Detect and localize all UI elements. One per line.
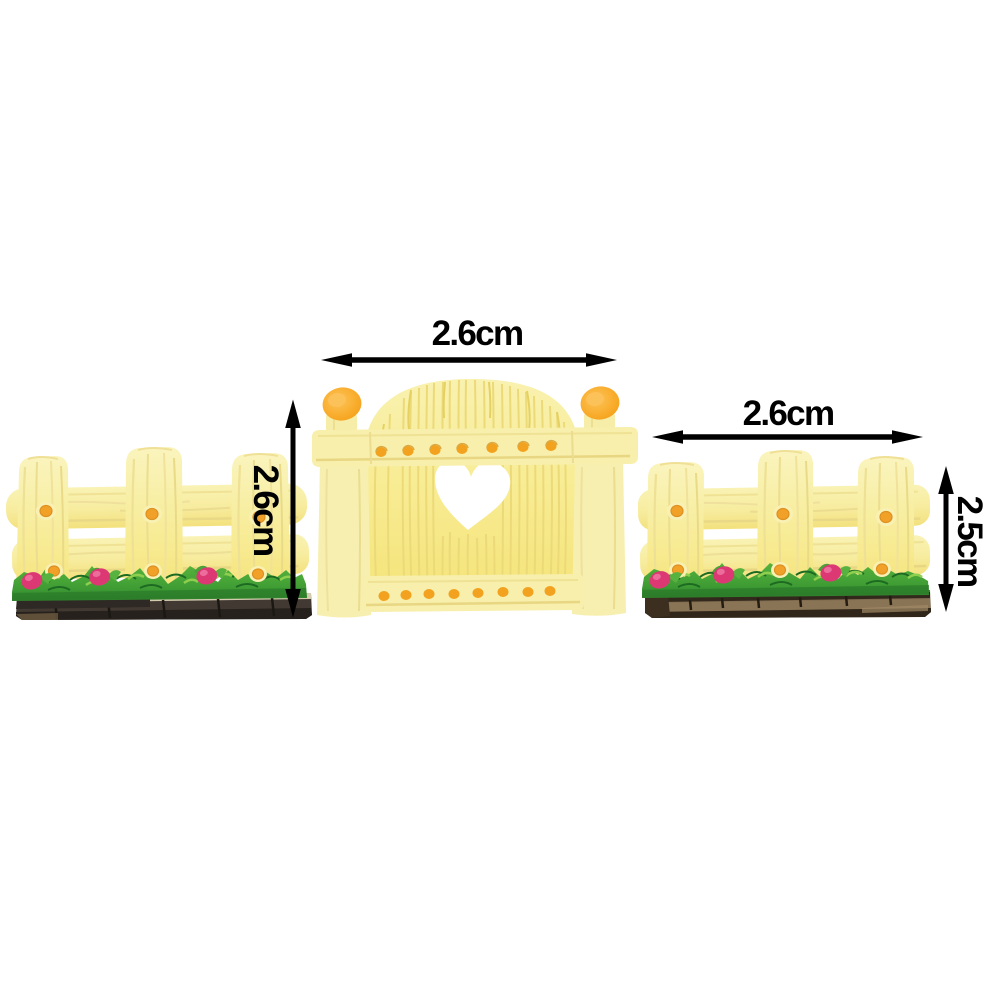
- svg-text:2.6cm: 2.6cm: [743, 394, 834, 433]
- svg-text:2.5cm: 2.5cm: [950, 496, 989, 587]
- svg-text:2.6cm: 2.6cm: [432, 314, 523, 353]
- svg-text:2.6cm: 2.6cm: [246, 465, 285, 556]
